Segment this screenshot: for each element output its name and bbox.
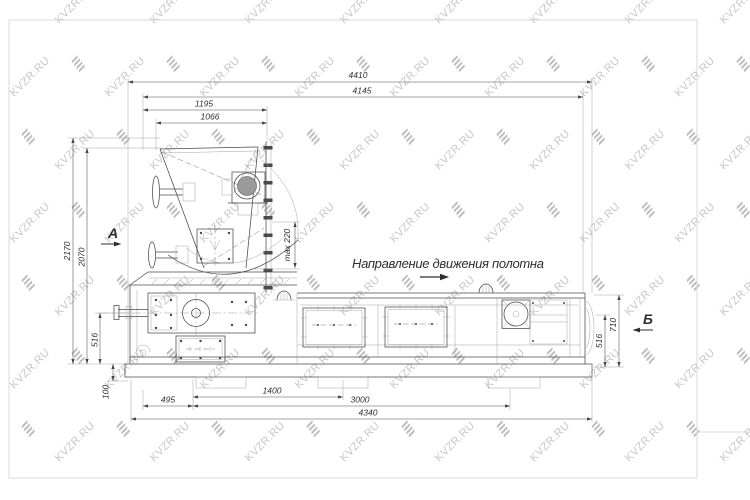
dimension-4145: 4145 (143, 86, 583, 98)
motor (222, 172, 268, 215)
dimension-3000: 3000 (193, 395, 510, 407)
dim-100: 100 (101, 385, 111, 399)
drive-section (100, 272, 297, 364)
dim-516-right: 516 (594, 334, 604, 348)
direction-arrow-icon (440, 274, 449, 280)
conveyor-body (273, 284, 594, 364)
vent-dome (273, 291, 295, 300)
dim-1400: 1400 (263, 386, 282, 396)
dim-4340: 4340 (359, 408, 378, 418)
view-label-b: Б (633, 311, 654, 332)
dim-max-220: max 220 (282, 228, 292, 261)
view-label-a: А (101, 225, 122, 246)
dim-516-left: 516 (90, 333, 100, 347)
view-b-text: Б (643, 311, 653, 327)
dimension-710: 710 (608, 295, 619, 367)
handwheel (153, 176, 196, 208)
extension-lines (68, 78, 624, 422)
bolt-strip (264, 142, 273, 292)
dimension-1066: 1066 (156, 112, 267, 124)
dimension-1195: 1195 (143, 99, 267, 111)
vent-dome (479, 284, 493, 293)
dimension-100: 100 (101, 364, 114, 399)
inspection-hatch (301, 306, 368, 350)
dim-4145: 4145 (353, 86, 372, 96)
view-a-text: А (107, 225, 118, 241)
dim-2070: 2070 (77, 247, 87, 267)
technical-drawing: 4410 4145 1195 1066 2170 2070 (0, 0, 750, 500)
dimensions: 4410 4145 1195 1066 2170 2070 (62, 70, 624, 422)
dimension-4410: 4410 (128, 70, 592, 82)
dim-495: 495 (161, 395, 175, 405)
dimension-2170: 2170 (62, 138, 73, 364)
dimension-4340: 4340 (131, 408, 592, 420)
dim-4410: 4410 (349, 70, 368, 80)
fan-unit (502, 300, 567, 344)
sheet-frame (9, 20, 750, 478)
view-b-arrow-icon (633, 328, 641, 333)
dimension-1400: 1400 (193, 386, 343, 398)
dimension-max-220: max 220 (282, 222, 295, 268)
drawing-sheet: KVZR.RUKVZR.RUKVZR.RUKVZR.RUKVZR.RUKVZR.… (0, 0, 750, 500)
direction-label: Направление движения полотна (352, 256, 544, 280)
dim-1195: 1195 (195, 99, 214, 109)
bolted-plate (197, 225, 233, 267)
dimension-516-left: 516 (90, 313, 101, 364)
view-a-arrow-icon (114, 242, 122, 247)
dim-1066: 1066 (201, 112, 220, 122)
dimension-495: 495 (143, 395, 193, 407)
inspection-hatch (383, 305, 450, 350)
hopper-assembly (149, 142, 299, 292)
direction-text: Направление движения полотна (352, 256, 544, 271)
dimension-2070: 2070 (77, 148, 88, 364)
dimension-516-right: 516 (594, 315, 605, 367)
dim-2170: 2170 (62, 241, 72, 261)
dim-3000: 3000 (351, 395, 370, 405)
dim-710: 710 (608, 318, 618, 332)
annotations: Направление движения полотна А Б (101, 225, 653, 332)
